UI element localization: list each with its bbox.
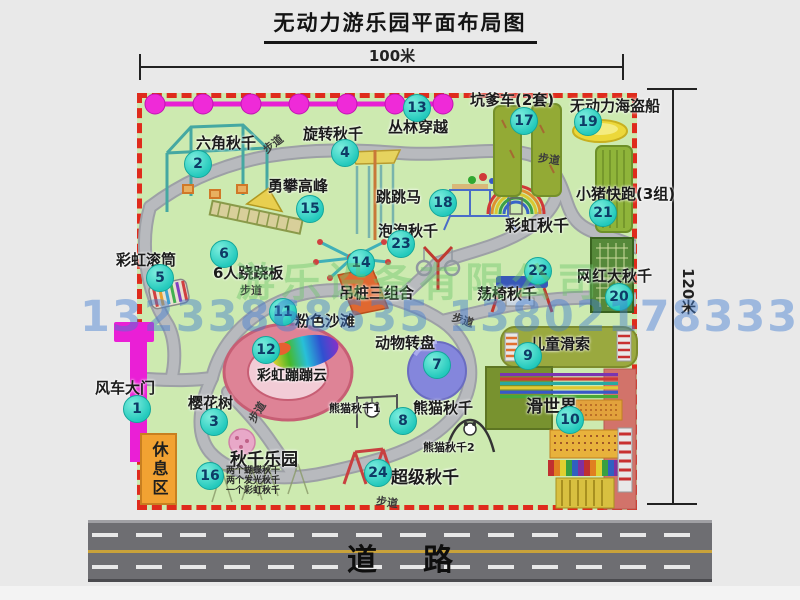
dimension-tick-right-bottom: [647, 503, 697, 505]
dimension-line-right: [672, 89, 674, 505]
dimension-tick-top-left: [139, 54, 141, 80]
rest-area-box: 休息区: [140, 433, 177, 505]
park-layout-poster: 无动力游乐园平面布局图 100米 120米 休息区: [0, 0, 800, 600]
bottom-margin: [0, 586, 800, 600]
dimension-label-width: 100米: [352, 45, 432, 66]
dimension-line-top: [140, 66, 624, 68]
page-title-text: 无动力游乐园平面布局图: [264, 7, 537, 44]
page-title: 无动力游乐园平面布局图: [0, 7, 800, 44]
rest-area-label: 休息区: [147, 441, 171, 498]
dimension-label-height: 120米: [678, 268, 699, 314]
park-map-area: [137, 93, 637, 510]
road-label: 道路: [88, 535, 712, 579]
road: 道路: [88, 520, 712, 582]
dimension-tick-top-right: [622, 54, 624, 80]
dimension-tick-right-top: [647, 88, 697, 90]
